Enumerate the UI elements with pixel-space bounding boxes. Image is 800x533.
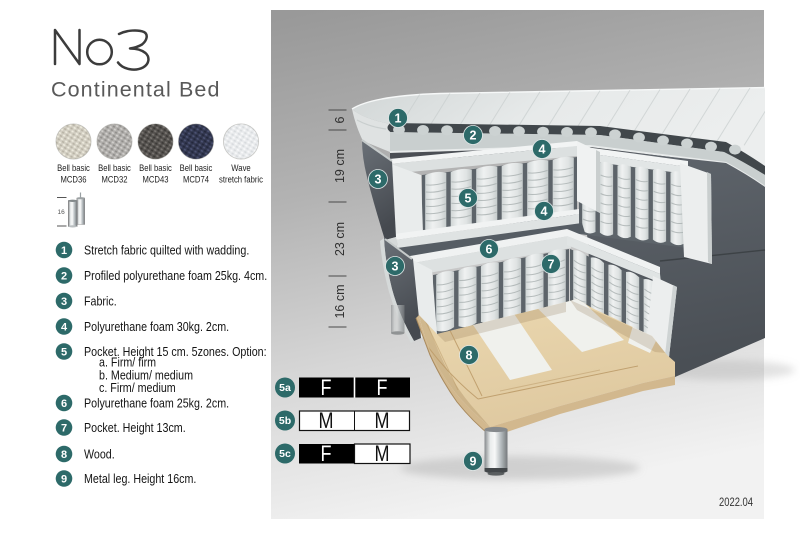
svg-text:F: F [321,441,332,466]
svg-text:6: 6 [61,398,67,410]
svg-text:Wave: Wave [231,163,250,173]
svg-text:5: 5 [61,347,67,359]
svg-text:Polyurethane foam 30kg. 2cm.: Polyurethane foam 30kg. 2cm. [84,319,229,334]
svg-text:19 cm: 19 cm [333,149,347,183]
svg-text:4: 4 [541,205,548,219]
svg-text:F: F [377,375,388,400]
svg-text:Pocket. Height 13cm.: Pocket. Height 13cm. [84,420,186,435]
svg-text:1: 1 [61,245,67,257]
svg-text:Wood.: Wood. [84,447,115,462]
svg-text:3: 3 [392,260,399,274]
svg-text:1: 1 [395,112,402,126]
svg-text:Bell basic: Bell basic [139,163,172,173]
svg-text:Bell basic: Bell basic [57,163,90,173]
svg-text:M: M [375,408,390,433]
svg-text:16 cm: 16 cm [333,284,347,318]
svg-text:c. Firm/ medium: c. Firm/ medium [99,380,176,395]
svg-text:stretch fabric: stretch fabric [219,175,263,185]
svg-text:6: 6 [486,243,493,257]
svg-text:5b: 5b [279,415,291,427]
svg-text:Bell basic: Bell basic [180,163,213,173]
svg-text:8: 8 [61,449,67,461]
svg-text:Stretch fabric quilted with wa: Stretch fabric quilted with wadding. [84,243,249,258]
svg-text:9: 9 [470,455,477,469]
svg-text:5: 5 [465,192,472,206]
svg-text:M: M [375,441,390,466]
svg-text:8: 8 [466,349,473,363]
svg-text:M: M [319,408,334,433]
svg-text:7: 7 [548,258,555,272]
svg-text:Polyurethane foam 25kg. 2cm.: Polyurethane foam 25kg. 2cm. [84,396,229,411]
svg-text:9: 9 [61,474,67,486]
svg-text:16: 16 [58,209,66,216]
svg-text:3: 3 [61,296,67,308]
svg-text:Bell basic: Bell basic [98,163,131,173]
svg-text:23 cm: 23 cm [333,222,347,256]
svg-text:MCD74: MCD74 [183,175,209,185]
svg-text:4: 4 [61,322,68,334]
svg-text:MCD32: MCD32 [102,175,128,185]
svg-text:5c: 5c [279,448,291,460]
svg-text:2: 2 [61,271,67,283]
svg-text:MCD36: MCD36 [61,175,87,185]
svg-text:Profiled polyurethane foam 25k: Profiled polyurethane foam 25kg. 4cm. [84,268,267,283]
svg-text:6: 6 [333,116,347,123]
svg-text:7: 7 [61,423,67,435]
svg-text:5a: 5a [279,382,291,394]
svg-text:F: F [321,375,332,400]
svg-text:Continental Bed: Continental Bed [51,78,221,102]
svg-text:2022.04: 2022.04 [719,497,753,509]
svg-text:MCD43: MCD43 [143,175,169,185]
svg-text:2: 2 [470,129,477,143]
svg-text:Metal leg. Height 16cm.: Metal leg. Height 16cm. [84,471,196,486]
svg-text:Fabric.: Fabric. [84,294,117,309]
svg-text:3: 3 [375,173,382,187]
svg-text:4: 4 [539,143,546,157]
